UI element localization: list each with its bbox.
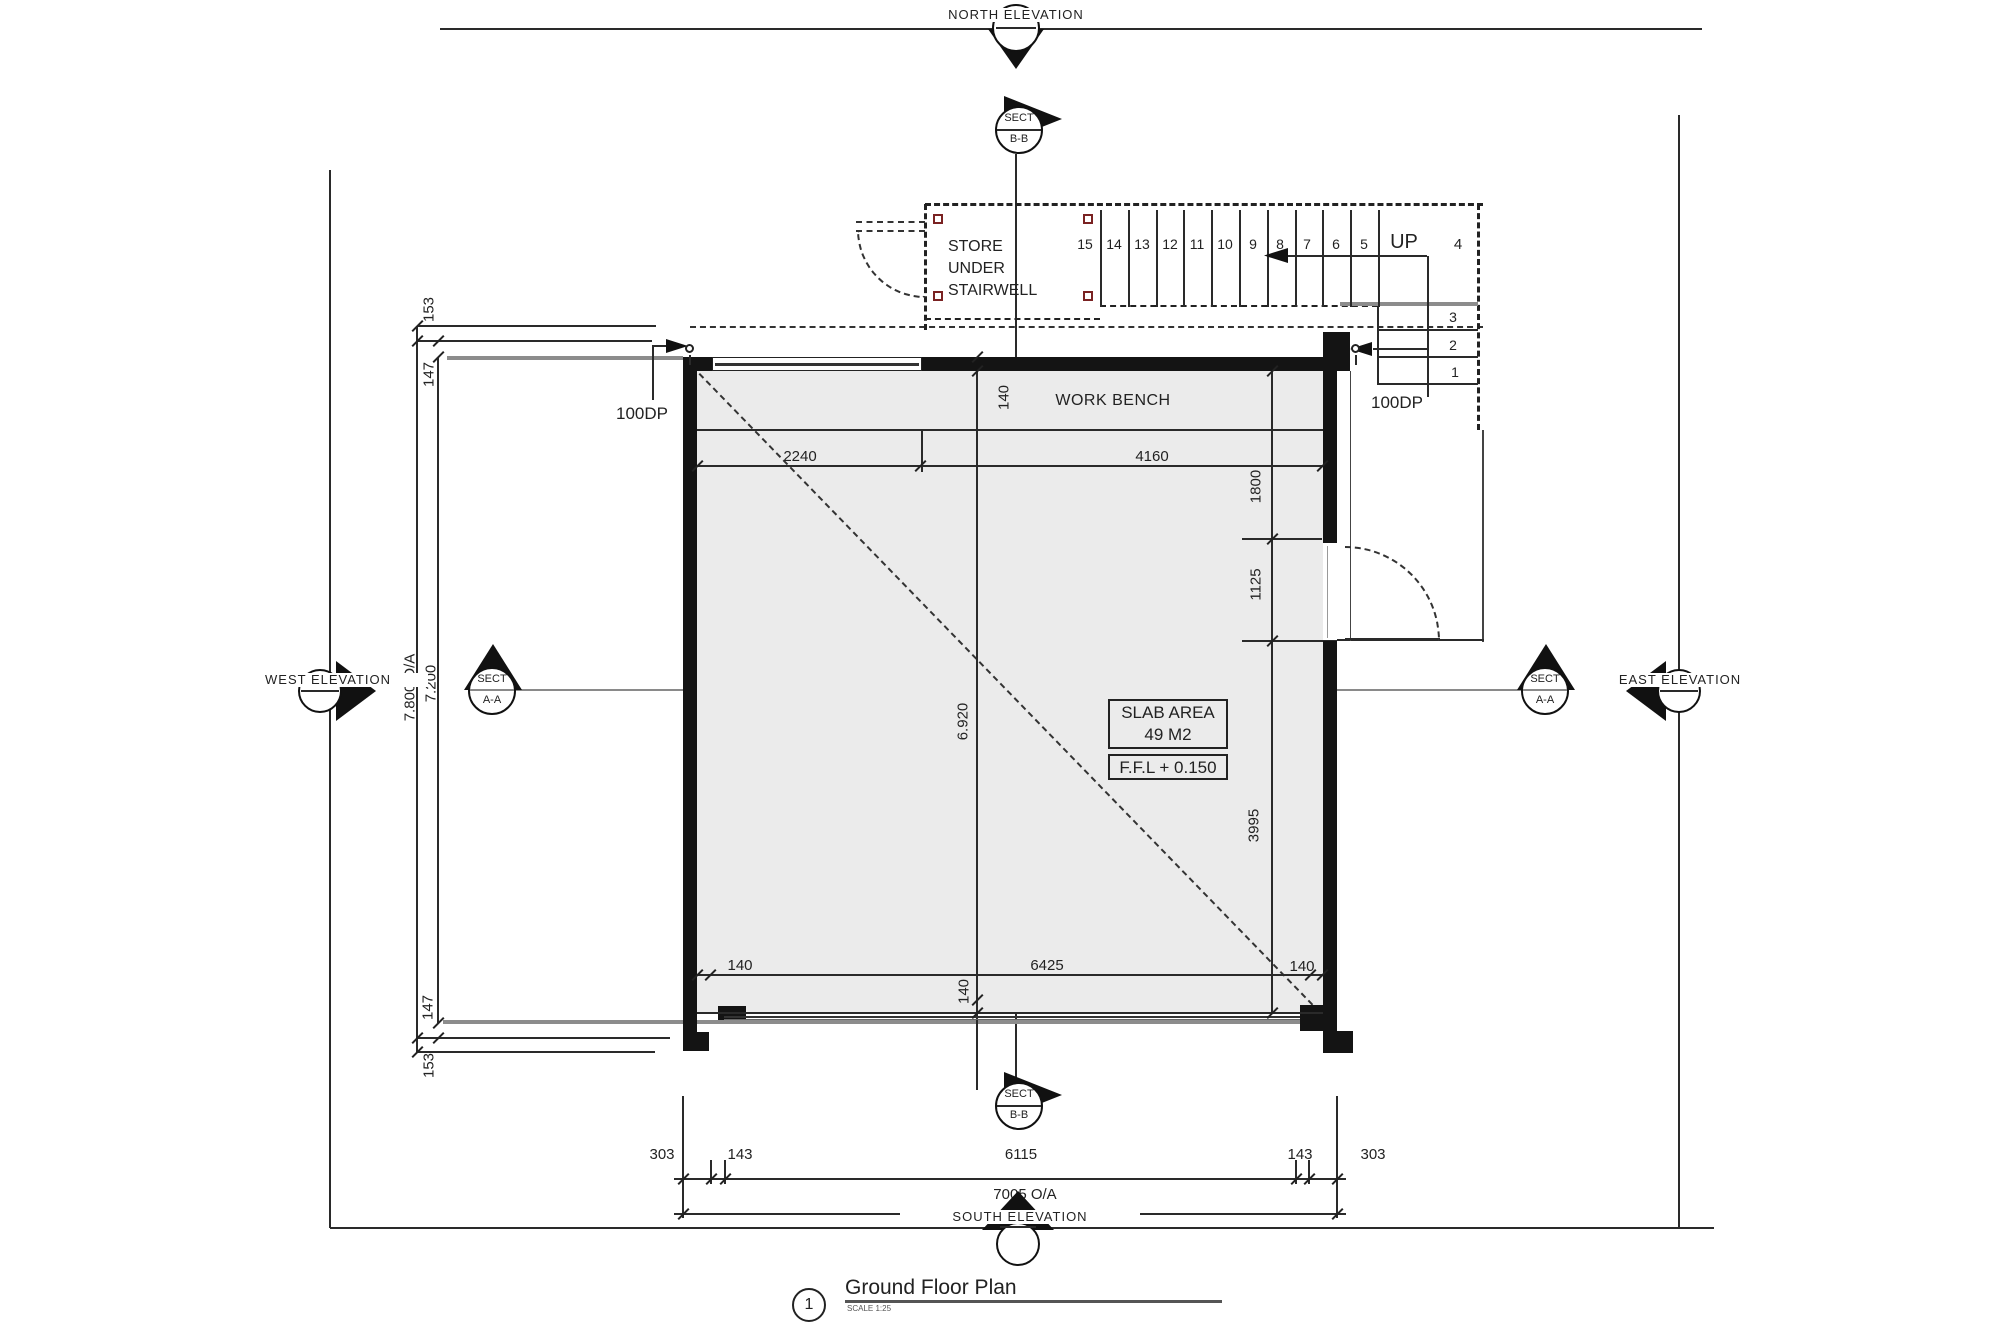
tread-number: 9: [1242, 237, 1264, 252]
post-marker: [1083, 214, 1093, 224]
dim-6115: 6115: [979, 1147, 1063, 1164]
dim-line-row1: [674, 1178, 1346, 1180]
tread-divider: [1211, 210, 1213, 307]
stair-path-horizontal: [1284, 255, 1427, 257]
post-marker: [1083, 291, 1093, 301]
stair-zone-border-top: [925, 203, 1483, 206]
downpipe-leader-left-h: [652, 345, 668, 347]
stair-path-vertical: [1427, 256, 1429, 397]
section-bb-top-label: SECT: [995, 113, 1043, 124]
section-aa-left-name: A-A: [468, 695, 516, 706]
ext-line-center: [976, 371, 978, 1090]
wall-right-upper-return: [1323, 332, 1350, 371]
dim-153-bottom: 153: [422, 1024, 437, 1108]
dim-143-left: 143: [710, 1147, 770, 1164]
tread-number: 13: [1131, 237, 1153, 252]
corner-bottom-right-footing: [1323, 1031, 1353, 1053]
ext-line: [418, 325, 656, 327]
tread-divider: [1350, 210, 1352, 307]
section-bb-bottom-name: B-B: [995, 1110, 1043, 1121]
tread-number-landing: 4: [1448, 237, 1468, 254]
tread-number: 5: [1353, 237, 1375, 252]
dim-1800: 1800: [1249, 445, 1264, 529]
tread-divider: [1183, 210, 1185, 307]
workbench-label: WORK BENCH: [1038, 392, 1188, 410]
ext-line: [1336, 1096, 1338, 1218]
ext-line: [1242, 538, 1322, 540]
section-aa-left-rule: [470, 689, 514, 691]
dim-303-right: 303: [1343, 1147, 1403, 1164]
title-underline: [845, 1300, 1222, 1303]
drawing-scale: SCALE 1:25: [847, 1305, 967, 1314]
tread-number: 2: [1444, 338, 1462, 353]
porch-edge-right: [1482, 430, 1484, 642]
store-label-line1: STORE: [948, 238, 1068, 256]
section-aa-left-label: SECT: [468, 674, 516, 685]
tread-divider: [1100, 210, 1102, 307]
post-marker: [933, 291, 943, 301]
store-door-swing-arc: [857, 230, 925, 298]
door-frame-line: [1327, 546, 1328, 638]
north-marker-rule: [996, 27, 1036, 29]
downpipe-symbol-right: [1351, 344, 1360, 353]
west-marker-rule: [301, 690, 339, 692]
corner-bottom-right: [1300, 1005, 1337, 1031]
tread-number: 7: [1296, 237, 1318, 252]
ext-line: [418, 1037, 670, 1039]
section-bb-top-name: B-B: [995, 134, 1043, 145]
dim-303-left: 303: [632, 1147, 692, 1164]
post-marker: [933, 214, 943, 224]
ffl-label: F.F.L + 0.150: [1108, 759, 1228, 778]
dim-140-br: 140: [1277, 959, 1327, 976]
tread-divider: [1239, 210, 1241, 307]
downpipe-symbol-left: [685, 344, 694, 353]
corner-bottom-left-footing: [683, 1032, 709, 1051]
section-bb-bottom-label: SECT: [995, 1089, 1043, 1100]
tread-divider: [1128, 210, 1130, 307]
ext-line: [418, 1051, 655, 1053]
store-label-line3: STAIRWELL: [948, 282, 1068, 300]
bottom-opening-track: [724, 1019, 1300, 1020]
tread-number: 14: [1103, 237, 1125, 252]
tread-divider: [1156, 210, 1158, 307]
tread-number: 8: [1269, 237, 1291, 252]
section-aa-right-name: A-A: [1521, 695, 1569, 706]
downpipe-stem-right: [1355, 355, 1357, 365]
drawing-title: Ground Floor Plan: [845, 1276, 1165, 1299]
stair-beam-line: [1340, 302, 1478, 306]
wall-right-above-door: [1323, 371, 1337, 543]
stair-zone-border-right: [1477, 204, 1480, 430]
window-top: [712, 357, 922, 371]
west-elevation-marker-arrow: [336, 661, 376, 721]
tread-number: 6: [1325, 237, 1347, 252]
tread-number: 12: [1159, 237, 1181, 252]
lower-tread-side: [1377, 307, 1379, 385]
door-swing-arc: [1345, 546, 1440, 641]
dim-140-bl: 140: [715, 958, 765, 975]
slab-area-label: SLAB AREA: [1108, 704, 1228, 723]
slab-area-value: 49 M2: [1108, 726, 1228, 745]
north-elevation-label: NORTH ELEVATION: [896, 8, 1136, 22]
dim-143-right: 143: [1270, 1147, 1330, 1164]
dim-7800-overall: 7.800 O/A: [403, 646, 418, 730]
drawing-number: 1: [805, 1296, 814, 1313]
ext-line: [418, 340, 652, 342]
tread-number: 3: [1444, 310, 1462, 325]
dim-1125: 1125: [1249, 543, 1264, 627]
dim-140-bc: 140: [957, 950, 972, 1034]
bottom-opening-inner-line: [697, 1012, 1323, 1014]
downpipe-leader-right-h: [1373, 348, 1427, 350]
tread-divider: [1378, 210, 1380, 307]
east-elevation-label: EAST ELEVATION: [1580, 673, 1780, 687]
tread-number: 11: [1186, 237, 1208, 252]
east-marker-rule: [1660, 690, 1698, 692]
wall-left: [683, 357, 697, 1032]
drawing-number-bubble: 1: [792, 1288, 826, 1322]
tread-divider: [1295, 210, 1297, 307]
downpipe-leader-left-v: [652, 345, 654, 400]
store-door-leaf-dashed: [856, 221, 925, 223]
tread-number: 1: [1446, 365, 1464, 380]
store-bottom-dashed: [925, 318, 1100, 320]
tread-number: 10: [1214, 237, 1236, 252]
stair-up-label: UP: [1382, 231, 1426, 253]
dim-6920-diag: 6.920: [956, 680, 971, 764]
dim-6425: 6425: [1005, 958, 1089, 975]
floor-above-dashed-outline: [690, 326, 1483, 328]
west-elevation-label: WEST ELEVATION: [228, 673, 428, 687]
gutter-line-bottom: [443, 1020, 1310, 1024]
window-glazing-line: [715, 363, 919, 366]
tread-divider: [1322, 210, 1324, 307]
tread-number: 15: [1074, 237, 1096, 252]
wall-right-below-door: [1323, 641, 1337, 1007]
section-aa-right-label: SECT: [1521, 674, 1569, 685]
south-elevation-label: SOUTH ELEVATION: [900, 1210, 1140, 1224]
tread-divider: [1267, 210, 1269, 307]
downpipe-label-right: 100DP: [1355, 394, 1439, 413]
dim-3995: 3995: [1247, 784, 1262, 868]
south-marker-rule: [1000, 1226, 1036, 1228]
dim-2240: 2240: [758, 449, 842, 466]
store-label-line2: UNDER: [948, 260, 1068, 278]
bottom-opening-glazing: [724, 1016, 1300, 1018]
section-bb-bottom-rule: [997, 1105, 1041, 1107]
gutter-line-top: [447, 356, 683, 360]
north-elevation-line: [440, 28, 1702, 30]
section-bb-top-rule: [997, 129, 1041, 131]
ground-floor-plan-drawing: 153 147 7.800 O/A 7.200 147 153 WORK BEN…: [0, 0, 2000, 1333]
downpipe-label-left: 100DP: [600, 405, 684, 424]
dim-line-right-interior: [1271, 371, 1273, 1013]
downpipe-stem-left: [689, 355, 691, 365]
section-aa-right-rule: [1523, 689, 1567, 691]
south-elevation-marker: [996, 1222, 1040, 1266]
dim-4160: 4160: [1110, 449, 1194, 466]
